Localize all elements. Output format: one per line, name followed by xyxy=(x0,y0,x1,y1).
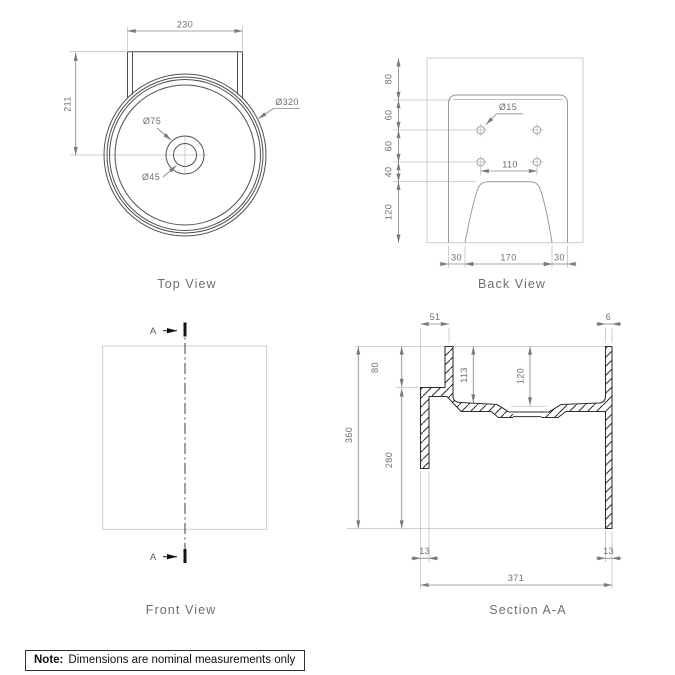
front-view-title: Front View xyxy=(146,603,217,617)
top-view-dimensions: 230 211 Ø75 Ø45 Ø320 xyxy=(63,20,301,183)
dim-110: 110 xyxy=(502,160,518,170)
section-marker-bottom-label: A xyxy=(150,552,157,563)
dim-170: 170 xyxy=(500,253,516,263)
dim-hole-dia: Ø15 xyxy=(499,102,517,112)
dim-30-left: 30 xyxy=(451,253,462,263)
dim-drain-dia: Ø45 xyxy=(142,172,160,182)
wall-plate-outline xyxy=(427,58,583,243)
drain-opening-gap xyxy=(513,413,542,419)
pedestal-shroud-outline xyxy=(465,182,552,243)
dim-80: 80 xyxy=(384,74,394,85)
dim-40: 40 xyxy=(384,167,394,178)
dim-360: 360 xyxy=(344,427,354,443)
hole-diameter-label: Ø15 xyxy=(486,102,523,125)
section-view: 51 6 360 80 280 113 120 13 13 371 xyxy=(344,312,622,617)
technical-drawing: 230 211 Ø75 Ø45 Ø320 Top View xyxy=(0,0,675,675)
dim-51: 51 xyxy=(430,312,441,322)
dim-width-230: 230 xyxy=(177,20,193,30)
dim-80-section: 80 xyxy=(370,362,380,373)
dim-113: 113 xyxy=(459,367,469,383)
dim-120-back: 120 xyxy=(384,204,394,220)
back-view: 80 60 60 40 120 Ø15 110 30 xyxy=(384,58,584,291)
back-view-bottom-chain: 30 170 30 xyxy=(440,253,577,265)
dim-280: 280 xyxy=(384,452,394,468)
back-view-title: Back View xyxy=(478,277,546,291)
note-text: Dimensions are nominal measurements only xyxy=(68,654,295,666)
note-label: Note: xyxy=(34,654,63,666)
back-view-left-chain: 80 60 60 40 120 xyxy=(384,58,399,242)
dim-120-section: 120 xyxy=(516,368,526,384)
dim-outer-dia: Ø320 xyxy=(275,97,299,107)
dim-13-left: 13 xyxy=(419,546,430,556)
dim-13-right: 13 xyxy=(603,546,614,556)
dim-371: 371 xyxy=(508,573,524,583)
note-box: Note:Dimensions are nominal measurements… xyxy=(25,650,305,671)
section-dimensions: 51 6 360 80 280 113 120 13 13 371 xyxy=(344,312,622,585)
dim-60a: 60 xyxy=(384,110,394,121)
dim-60b: 60 xyxy=(384,141,394,152)
drawing-sheet: 230 211 Ø75 Ø45 Ø320 Top View xyxy=(0,0,675,675)
front-view: A A Front View xyxy=(103,323,267,618)
top-view: 230 211 Ø75 Ø45 Ø320 Top View xyxy=(63,20,301,292)
dim-height-211: 211 xyxy=(63,96,73,112)
top-view-title: Top View xyxy=(157,277,216,291)
dim-6: 6 xyxy=(606,312,611,322)
dim-30-right: 30 xyxy=(554,253,565,263)
hole-spacing-dimension: 110 xyxy=(481,160,537,176)
section-view-title: Section A-A xyxy=(489,603,566,617)
dim-overflow-dia: Ø75 xyxy=(143,116,161,126)
section-marker-top-label: A xyxy=(150,326,157,337)
